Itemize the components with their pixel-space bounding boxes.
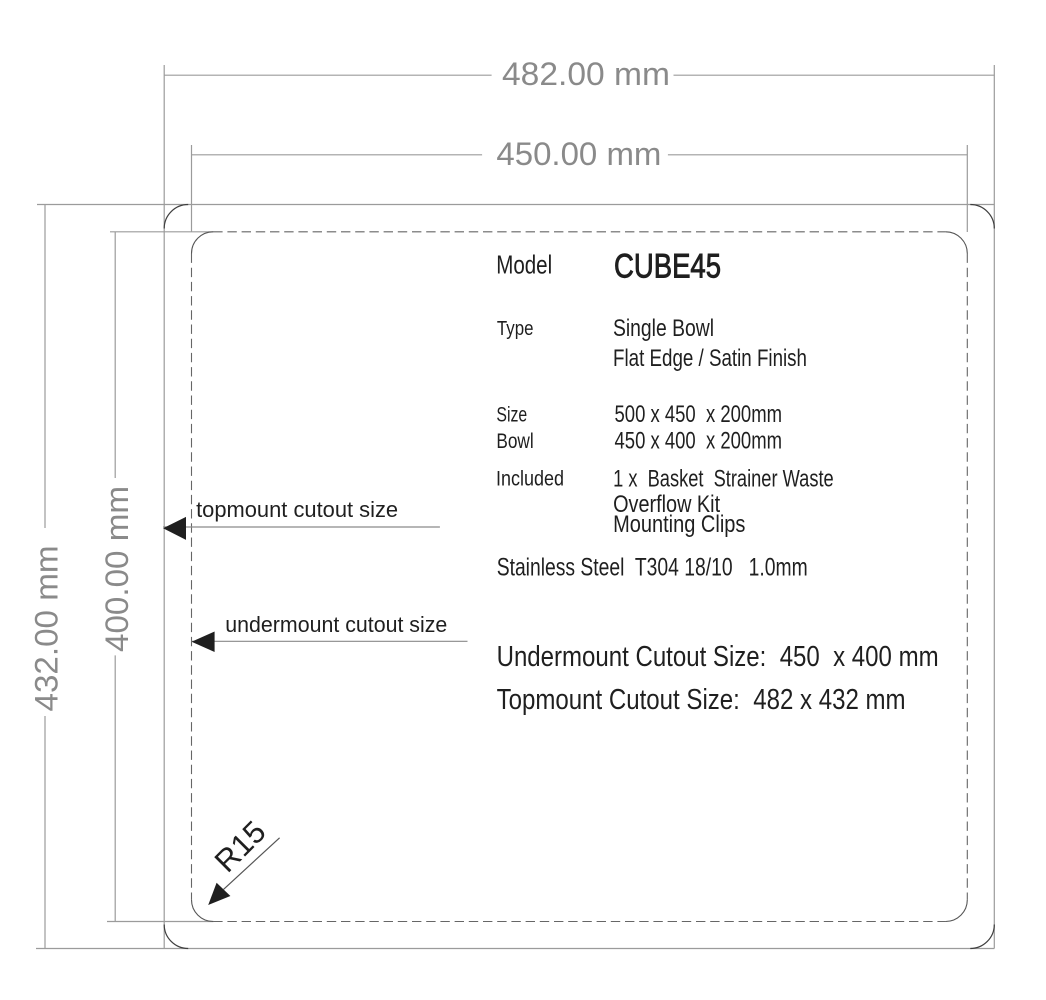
svg-text:Included: Included xyxy=(496,468,564,491)
svg-text:Stainless Steel T304 18/10: Stainless Steel T304 18/10 1.0mm xyxy=(497,553,808,581)
svg-text:Mounting Clips: Mounting Clips xyxy=(613,511,745,538)
svg-text:Single Bowl: Single Bowl xyxy=(613,315,714,342)
svg-text:Flat Edge / Satin Finish: Flat Edge / Satin Finish xyxy=(613,345,807,372)
svg-text:Size: Size xyxy=(496,403,527,426)
svg-text:450.00 mm: 450.00 mm xyxy=(496,136,661,172)
svg-text:432.00 mm: 432.00 mm xyxy=(29,546,65,712)
svg-text:450 x 400 x 200mm: 450 x 400 x 200mm xyxy=(615,428,783,455)
svg-text:482.00 mm: 482.00 mm xyxy=(502,56,670,92)
svg-text:1 x Basket Strainer Waste: 1 x Basket Strainer Waste xyxy=(613,466,834,493)
svg-text:undermount cutout size: undermount cutout size xyxy=(225,612,447,637)
svg-text:Model: Model xyxy=(496,250,552,280)
svg-text:topmount cutout size: topmount cutout size xyxy=(196,497,398,522)
svg-text:Bowl: Bowl xyxy=(496,430,533,453)
svg-text:Undermount Cutout Size: 450: Undermount Cutout Size: 450 x 400 mm xyxy=(497,641,939,673)
svg-text:CUBE45: CUBE45 xyxy=(614,247,721,285)
svg-text:500 x 450 x 200mm: 500 x 450 x 200mm xyxy=(615,401,783,428)
svg-text:Type: Type xyxy=(497,318,534,340)
svg-text:400.00 mm: 400.00 mm xyxy=(99,486,135,652)
svg-text:Topmount Cutout Size: 482 x 4: Topmount Cutout Size: 482 x 432 mm xyxy=(497,684,906,716)
